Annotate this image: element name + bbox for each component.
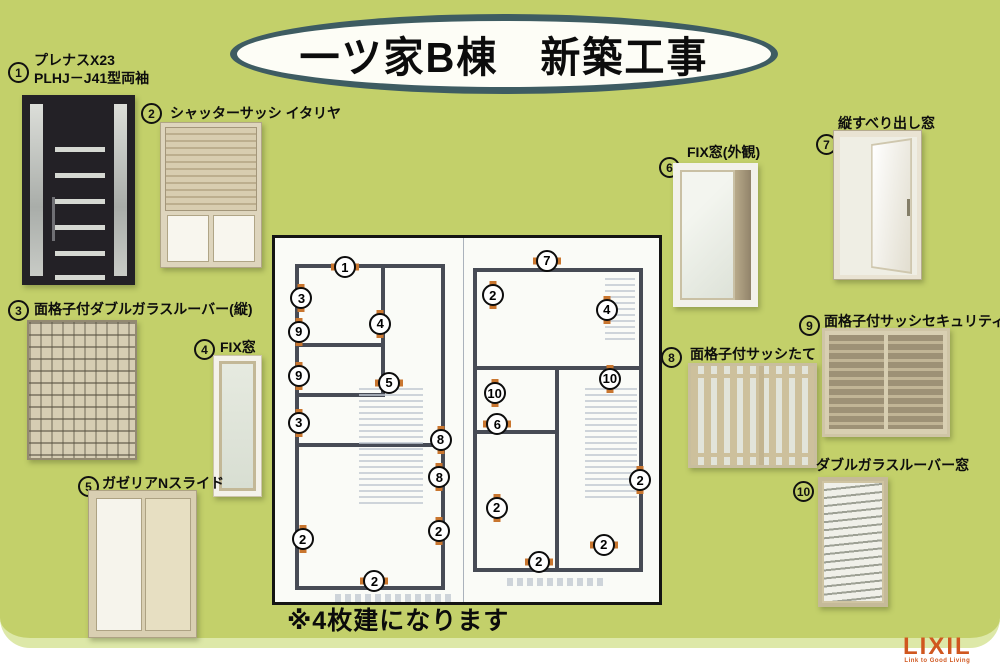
product-1-door-photo: [22, 95, 135, 285]
product-6-fix-exterior-photo: [673, 163, 758, 307]
fix-exterior-glass: [680, 170, 735, 300]
floor-plan: 139495388222724101062222: [272, 235, 662, 605]
product-9-number: 9: [799, 315, 820, 336]
lixil-logo-text: LIXIL: [903, 636, 972, 658]
plan-marker-7: 7: [536, 250, 558, 272]
title-oval: 一ツ家B棟 新築工事: [230, 14, 778, 94]
plan-marker-5: 5: [378, 372, 400, 394]
louver10-glass: [824, 483, 882, 601]
plan-marker-2: 2: [428, 520, 450, 542]
plan-marker-8: 8: [428, 466, 450, 488]
door-sidelite-left: [30, 104, 43, 276]
door-glass-slit: [55, 147, 105, 152]
plan-marker-9: 9: [288, 321, 310, 343]
door-glass-slit: [55, 173, 105, 178]
door-glass-slit: [55, 275, 105, 280]
product-1-label-line2: PLHJ－J41型両袖: [34, 68, 149, 88]
plan-marker-3: 3: [290, 287, 312, 309]
product-6-label: FIX窓(外観): [687, 142, 760, 162]
plan-marker-1: 1: [334, 256, 356, 278]
product-2-shutter-photo: [160, 122, 262, 268]
door-sidelite-right: [114, 104, 127, 276]
product-10-louver-photo: [818, 477, 888, 607]
louver-panel-left: [829, 335, 884, 429]
product-4-number: 4: [194, 339, 215, 360]
product-4-label: FIX窓: [220, 337, 256, 357]
door-glass-slit: [55, 225, 105, 230]
product-1-number: 1: [8, 62, 29, 83]
product-8-label: 面格子付サッシたて: [690, 344, 816, 364]
lixil-logo-tagline: Link to Good Living: [903, 658, 972, 664]
product-10-number: 10: [793, 481, 814, 502]
plan-marker-2: 2: [593, 534, 615, 556]
plan-marker-2: 2: [292, 528, 314, 550]
product-8-vbars-photo: [688, 363, 817, 468]
product-2-number: 2: [141, 103, 162, 124]
vbar-rail-top: [691, 374, 814, 378]
plan-marker-4: 4: [596, 299, 618, 321]
fix-exterior-reveal: [735, 170, 751, 300]
casement-handle: [907, 199, 910, 216]
plan-marker-4: 4: [369, 313, 391, 335]
floor-plan-markers: 139495388222724101062222: [275, 238, 659, 602]
product-1-label-line1: プレナスX23: [34, 50, 115, 70]
plan-marker-2: 2: [528, 551, 550, 573]
vbar-rail-bottom: [691, 453, 814, 457]
product-3-lattice-photo: [27, 320, 137, 460]
door-handle: [52, 197, 55, 241]
plan-marker-2: 2: [486, 497, 508, 519]
shutter-pane-left: [167, 215, 209, 262]
product-9-louver-photo: [822, 328, 950, 437]
door-glass-slit: [55, 199, 105, 204]
product-7-casement-photo: [833, 130, 922, 280]
plan-marker-8: 8: [430, 429, 452, 451]
plan-marker-10: 10: [599, 368, 621, 390]
casement-open-sash: [871, 138, 912, 274]
lixil-logo: LIXIL Link to Good Living: [903, 636, 972, 664]
door-glass-slit: [55, 251, 105, 256]
plan-marker-2: 2: [363, 570, 385, 592]
product-5-slider-photo: [88, 490, 197, 638]
fix-window-glass: [219, 361, 256, 491]
vbar-center-mullion: [759, 366, 764, 465]
slider-panel-left: [96, 498, 142, 631]
louver-panel-right: [888, 335, 943, 429]
scanned-construction-sheet: 一ツ家B棟 新築工事 1 プレナスX23 PLHJ－J41型両袖 2 シャッター…: [0, 0, 1000, 671]
product-3-label: 面格子付ダブルガラスルーバー(縦): [34, 299, 252, 319]
plan-marker-3: 3: [288, 412, 310, 434]
plan-marker-6: 6: [486, 413, 508, 435]
plan-marker-10: 10: [484, 382, 506, 404]
product-2-label: シャッターサッシ イタリヤ: [170, 103, 341, 123]
plan-marker-2: 2: [629, 469, 651, 491]
plan-marker-2: 2: [482, 284, 504, 306]
shutter-pane-right: [213, 215, 255, 262]
note-text: ※4枚建になります: [287, 601, 509, 637]
product-10-label: ダブルガラスルーバー窓: [816, 455, 969, 475]
product-8-number: 8: [661, 347, 682, 368]
product-3-number: 3: [8, 300, 29, 321]
page-title: 一ツ家B棟 新築工事: [300, 24, 709, 85]
plan-marker-9: 9: [288, 365, 310, 387]
shutter-slats: [165, 127, 257, 211]
slider-panel-right: [145, 498, 191, 631]
